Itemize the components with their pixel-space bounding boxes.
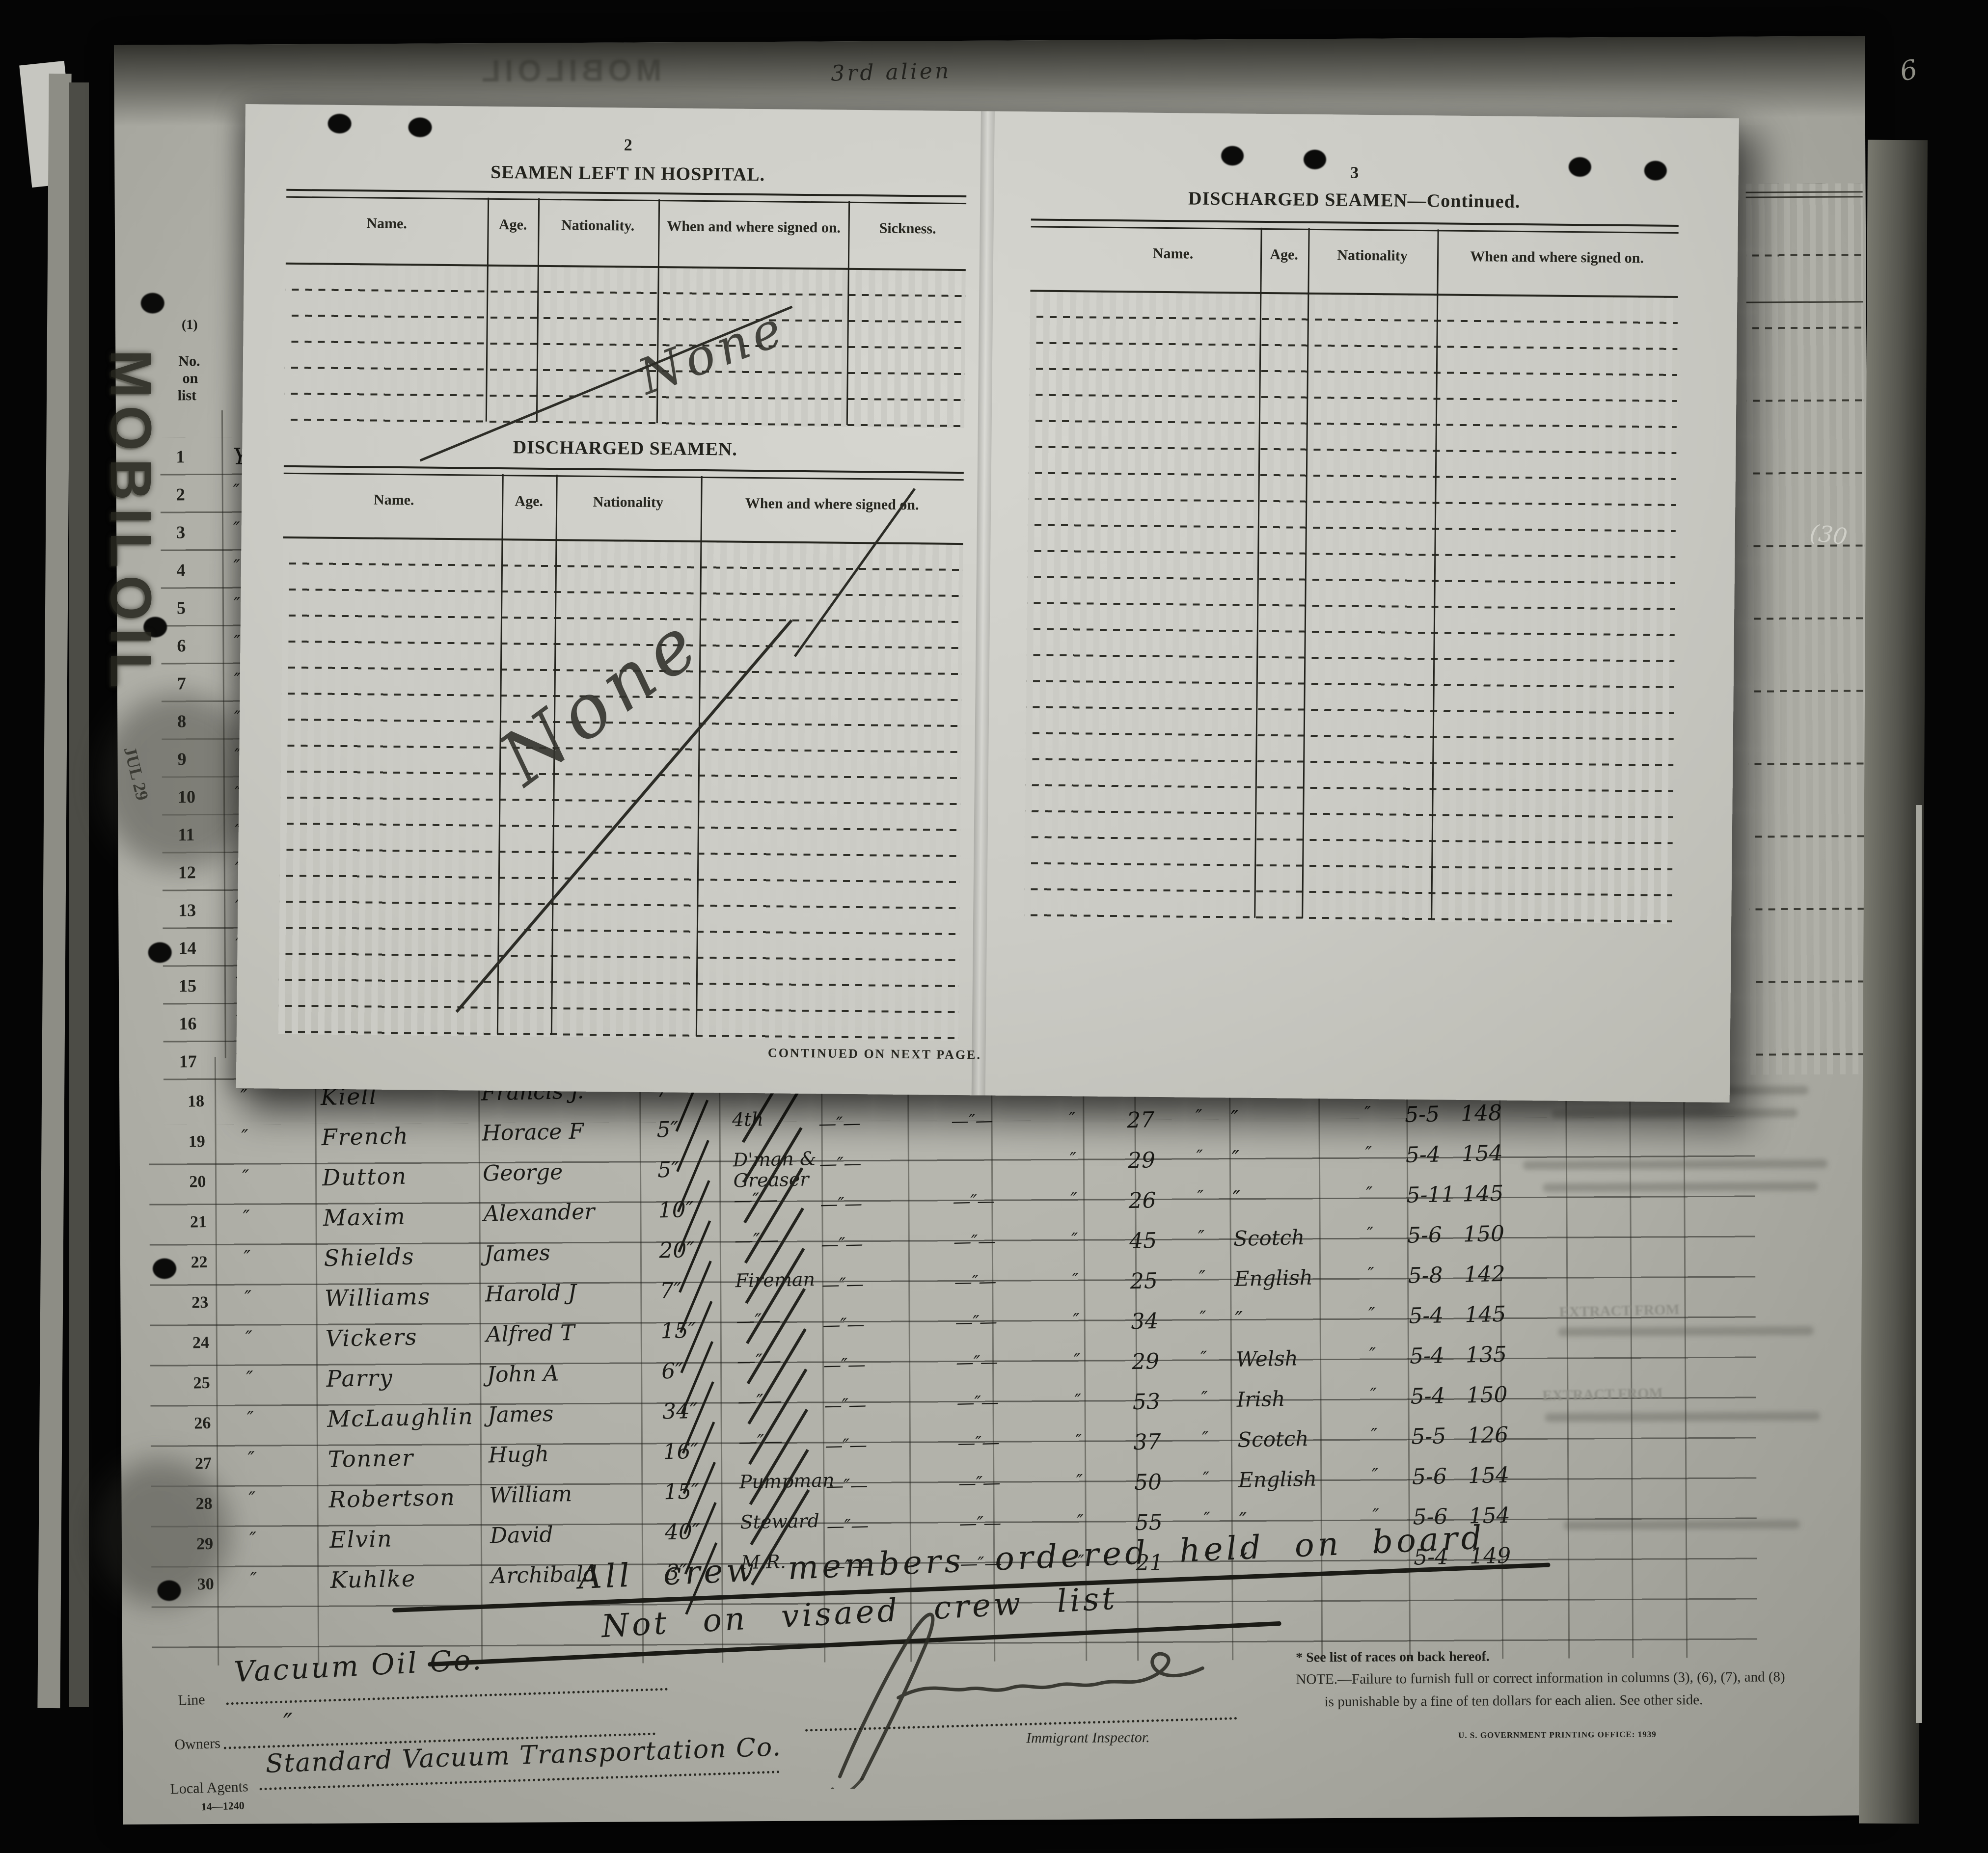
ditto: ″ [1070,1189,1077,1209]
date: 5-6 [1407,1222,1443,1248]
date: 5-5 [1405,1101,1440,1127]
ditto: ″ [241,1126,248,1147]
dash-mark: —″— [958,1473,1001,1494]
double-rule [286,189,966,204]
surname: Maxim [323,1203,406,1231]
nationality: ″ [1231,1106,1239,1130]
age: 25 [1130,1268,1158,1294]
rating: —″— [735,1229,779,1251]
local-agents-label: Local Agents [170,1778,248,1798]
list-number: 150 [1466,1382,1508,1408]
dash-mark: —″— [957,1433,1000,1454]
surname: McLaughlin [327,1403,474,1432]
date: 5-6 [1412,1464,1447,1489]
nationality: Scotch [1237,1426,1309,1452]
ditto: ″ [1196,1147,1203,1167]
inspector-signature [735,1581,1257,1790]
dash-mark: —″— [826,1476,868,1497]
ditto: ″ [240,1085,247,1107]
rating: —″— [737,1390,782,1412]
nationality: ″ [1232,1186,1241,1210]
surname: Elvin [329,1525,393,1553]
given-name: Alexander [483,1199,595,1227]
row-number: 27 [185,1454,222,1473]
ruled-body [278,537,963,1041]
given-name: James [484,1240,550,1267]
corner-mark-6: 6 [1897,54,1920,87]
list-number: 148 [1461,1101,1502,1127]
ditto: ″ [247,1448,255,1469]
ditto: ″ [1198,1227,1205,1247]
row-number: 30 [187,1575,224,1594]
ditto: ″ [250,1568,257,1590]
dash-mark: —″— [825,1435,867,1456]
given-name: Horace F [482,1119,584,1146]
dash-mark: —″— [824,1395,866,1416]
ruled-body [1024,290,1678,924]
bleed-smudge [1545,1412,1820,1422]
note-line-2: is punishable by a fine of ten dollars f… [1325,1692,1703,1710]
ditto: ″ [1371,1465,1378,1485]
col-header-signed-on: When and where signed on. [1439,248,1675,267]
rating: —″— [734,1189,778,1211]
double-rule [1031,218,1679,234]
years-at-sea: 34″ [662,1398,698,1424]
nationality: Scotch [1233,1225,1305,1251]
dash-mark: —″— [954,1272,996,1293]
ditto: ″ [1370,1385,1377,1405]
row-number: 20 [179,1172,216,1191]
surname: Tonner [327,1444,414,1473]
col-header-sickness: Sickness. [849,220,966,238]
dash-mark: —″— [953,1191,995,1212]
row-number: 18 [178,1092,215,1111]
ditto: ″ [1367,1224,1374,1244]
col-header-age: Age. [503,493,554,510]
races-note: * See list of races on back hereof. [1296,1649,1490,1665]
list-number: 145 [1465,1302,1506,1328]
years-at-sea: 7″ [660,1278,682,1303]
col-header-signed-on: When and where signed on. [703,495,961,514]
rating: 4th [732,1108,764,1130]
ditto: ″ [1077,1511,1084,1531]
row-number: 26 [184,1414,221,1433]
ditto: ″ [1073,1310,1080,1330]
paper-edge-strip [37,74,71,1708]
years-at-sea: 40″ [664,1519,700,1545]
dash-mark: —″— [821,1234,863,1255]
rating: —″— [738,1430,783,1452]
row-number: 23 [182,1293,218,1312]
col-header-age: Age. [1261,246,1307,264]
discharged-continued-table: Name. Age. Nationality When and where si… [1024,218,1679,927]
ditto: ″ [247,1407,254,1429]
years-at-sea: 10″ [658,1197,694,1223]
bleed-smudge [1543,1182,1818,1192]
list-number: 154 [1461,1141,1503,1167]
ditto: ″ [1202,1428,1209,1449]
given-name: John A [487,1361,559,1388]
list-number: 145 [1462,1181,1504,1207]
surname: Parry [326,1364,393,1392]
ditto: ″ [1196,1106,1202,1127]
bleed-extract-text: EXTRACT FROM [1559,1301,1680,1321]
dash-mark: —″— [821,1274,864,1295]
dash-mark: —″— [819,1154,862,1175]
age: 37 [1133,1429,1161,1455]
ditto: ″ [246,1367,253,1389]
ditto: ″ [1069,1149,1076,1169]
bleed-smudge [1523,1159,1827,1170]
given-name: James [488,1401,554,1428]
ditto: ″ [1071,1230,1078,1250]
age: 34 [1131,1309,1159,1334]
row-number: 21 [180,1212,217,1232]
dash-mark: —″— [956,1352,998,1373]
dotted-rule [226,1688,668,1705]
rating: Steward [740,1510,819,1533]
col-header-name: Name. [1089,245,1256,263]
ditto: ″ [1365,1143,1372,1163]
ditto: ″ [242,1166,249,1187]
ditto: ″ [244,1246,251,1268]
ditto: ″ [249,1528,257,1550]
surname: French [321,1123,409,1151]
ditto: ″ [1367,1264,1374,1284]
ditto: ″ [1203,1509,1210,1529]
paper-edge-highlight [1916,805,1922,1723]
dash-mark: —″— [822,1315,865,1336]
ruled-body [284,263,966,428]
page-number-3: 3 [1109,161,1600,185]
dash-mark: —″— [820,1194,862,1215]
note-line-1: NOTE.—Failure to furnish full or correct… [1296,1669,1785,1688]
col-header-age: Age. [489,216,538,234]
years-at-sea: 5″ [656,1117,679,1143]
ditto: ″ [1201,1388,1208,1408]
age: 55 [1135,1510,1163,1535]
years-at-sea: 6″ [661,1358,683,1384]
date: 5-4 [1405,1142,1441,1167]
surname: Kuhlke [330,1565,416,1593]
age: 29 [1127,1148,1155,1173]
dash-mark: —″— [818,1113,861,1134]
dash-mark: —″— [951,1111,993,1132]
page-number-2: 2 [382,134,873,158]
ditto: ″ [1203,1469,1210,1489]
scanned-document-photo: 3rd alien MOBILOIL Form 680 U. S. DEPART… [0,0,1988,1853]
nationality: English [1238,1467,1317,1492]
bleed-smudge [1552,1108,1797,1119]
ditto: ″ [1197,1187,1204,1207]
col-header-nationality: Nationality. [539,217,656,235]
form-code: 14—1240 [201,1799,245,1813]
ditto: ″ [1364,1103,1371,1123]
col-header-nationality: Nationality [1309,247,1435,265]
ditto: ″ [1369,1344,1376,1365]
punch-hole [1644,161,1667,180]
dash-mark: —″— [955,1312,997,1333]
hospital-discharged-folio: 2 SEAMEN LEFT IN HOSPITAL. Name. Age. Na… [236,104,1739,1102]
printing-office: U. S. GOVERNMENT PRINTING OFFICE: 1939 [1458,1730,1657,1741]
given-name: David [490,1522,553,1549]
bleed-extract-text: EXTRACT FROM [1542,1385,1663,1404]
row-number: 28 [186,1494,222,1513]
col-header-name: Name. [318,491,470,509]
age: 45 [1129,1228,1157,1254]
ditto: ″ [243,1206,250,1228]
rating: D'man & [733,1148,817,1171]
ditto: ″ [245,1327,252,1348]
years-at-sea: 15″ [660,1318,696,1343]
rating: —″— [737,1349,782,1372]
surname: Williams [325,1283,431,1312]
list-number: 150 [1463,1221,1505,1247]
years-at-sea: 20″ [659,1237,695,1263]
continued-label: CONTINUED ON NEXT PAGE. [678,1045,1071,1064]
list-number: 135 [1465,1342,1507,1368]
discharged-table: Name. Age. Nationality When and where si… [278,465,964,1041]
discharged-continued-title: DISCHARGED SEAMEN—Continued. [1109,187,1600,214]
ditto: ″ [1366,1183,1373,1204]
years-at-sea: 15″ [664,1479,700,1504]
ditto: ″ [1072,1270,1079,1290]
ditto: ″ [1069,1109,1076,1129]
list-number: 126 [1467,1423,1509,1449]
ditto: ″ [1200,1348,1207,1368]
age: 53 [1132,1389,1160,1415]
ditto: ″ [1076,1471,1083,1491]
ditto: ″ [1368,1304,1375,1324]
age: 27 [1127,1107,1155,1133]
ditto: ″ [1199,1308,1206,1328]
date: 5-4 [1409,1303,1444,1328]
nationality: English [1234,1265,1313,1291]
date: 5-4 [1410,1383,1445,1409]
ditto: ″ [1198,1267,1205,1288]
rating: Pumpman [739,1469,834,1493]
nationality: ″ [1231,1146,1240,1170]
dash-mark: —″— [956,1393,999,1414]
date: 5-5 [1411,1423,1446,1449]
nationality: Irish [1236,1387,1285,1412]
center-fold [972,111,995,1095]
date: 5-8 [1408,1262,1443,1288]
given-name: George [483,1159,563,1186]
col-header-nationality: Nationality [557,493,699,511]
row-number: 19 [178,1132,215,1151]
row-number: 24 [183,1333,219,1352]
list-number: 154 [1468,1463,1509,1489]
ditto: ″ [1371,1425,1378,1445]
ditto: ″ [248,1488,256,1509]
dash-mark: —″— [823,1355,866,1376]
given-name: William [489,1481,572,1508]
given-name: Harold J [485,1280,577,1307]
line-label: Line [178,1692,205,1709]
given-name: Hugh [488,1442,549,1468]
owners-label: Owners [174,1735,220,1753]
ditto: ″ [1074,1350,1081,1370]
dash-mark: —″— [953,1232,996,1253]
bleed-smudge [1564,1520,1800,1530]
surname: Vickers [325,1323,418,1352]
age: 26 [1128,1188,1156,1213]
inspector-label: Immigrant Inspector. [1026,1729,1150,1746]
ditto: ″ [1075,1431,1082,1451]
row-number: 29 [187,1534,223,1554]
bleed-smudge [1558,1326,1814,1337]
given-name: Alfred T [486,1320,575,1347]
dash-mark: —″— [959,1513,1001,1534]
rating: —″— [736,1309,781,1332]
age: 50 [1134,1470,1162,1495]
years-at-sea: 16″ [663,1439,699,1464]
age: 29 [1132,1349,1160,1374]
hospital-table-title: SEAMEN LEFT IN HOSPITAL. [382,161,873,187]
owners-value: ″ [283,1708,293,1738]
row-number: 25 [183,1373,220,1393]
list-number: 142 [1464,1262,1505,1288]
edge-mark-30: (30 [1808,519,1849,550]
date: 5-11 [1406,1182,1455,1208]
paper-edge-strip-dark [69,82,89,1707]
years-at-sea: 5″ [657,1157,680,1183]
punch-hole [327,114,351,134]
ditto: ″ [245,1287,252,1308]
ditto: ″ [1074,1391,1081,1411]
surname: Dutton [322,1163,408,1191]
surname: Robertson [328,1484,456,1513]
hospital-table: Name. Age. Nationality. When and where s… [284,189,967,431]
discharged-table-title: DISCHARGED SEAMEN. [380,435,871,462]
col-header-name: Name. [316,215,458,233]
nationality: ″ [1235,1307,1243,1331]
row-number: 22 [181,1253,218,1272]
nationality: Welsh [1236,1346,1299,1371]
double-rule [284,465,964,481]
date: 5-4 [1410,1343,1445,1369]
dash-mark: —″— [826,1516,869,1537]
col-header-signed-on: When and where signed on. [659,218,848,237]
surname: Shields [324,1243,415,1271]
